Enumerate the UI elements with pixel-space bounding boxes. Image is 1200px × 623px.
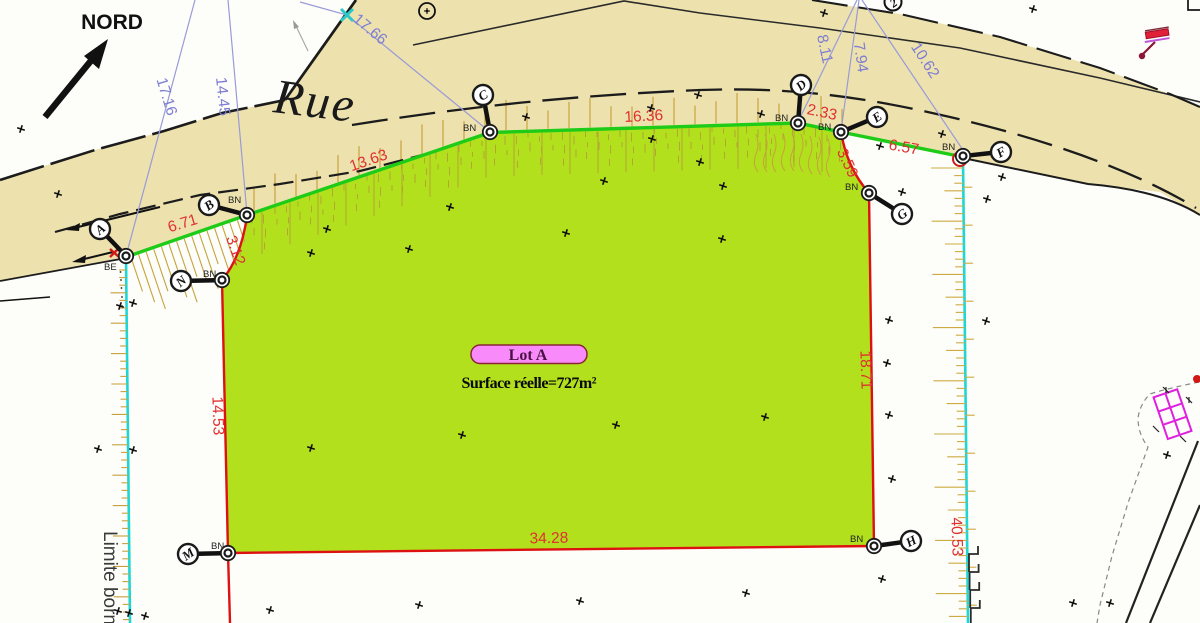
svg-text:BN: BN bbox=[228, 195, 241, 206]
svg-text:BN: BN bbox=[203, 269, 216, 280]
svg-text:Limite bornée: Limite bornée bbox=[99, 531, 120, 623]
svg-text:Rue: Rue bbox=[270, 68, 359, 133]
svg-text:BE: BE bbox=[104, 262, 117, 273]
svg-text:NORD: NORD bbox=[81, 11, 143, 34]
svg-text:Lot A: Lot A bbox=[509, 347, 548, 364]
svg-text:34.28: 34.28 bbox=[529, 530, 568, 548]
svg-text:BN: BN bbox=[850, 534, 863, 545]
svg-text:BN: BN bbox=[845, 182, 858, 193]
svg-text:14.53: 14.53 bbox=[208, 396, 226, 435]
svg-text:BN: BN bbox=[942, 142, 955, 153]
svg-text:BN: BN bbox=[775, 113, 788, 124]
svg-text:18.71: 18.71 bbox=[856, 350, 874, 389]
svg-text:BN: BN bbox=[211, 541, 224, 552]
svg-text:40.53: 40.53 bbox=[947, 517, 965, 556]
svg-text:BN: BN bbox=[463, 123, 476, 134]
svg-text:BN: BN bbox=[818, 122, 831, 133]
svg-text:Surface réelle=727m²: Surface réelle=727m² bbox=[462, 375, 597, 392]
svg-text:16.36: 16.36 bbox=[624, 107, 664, 126]
